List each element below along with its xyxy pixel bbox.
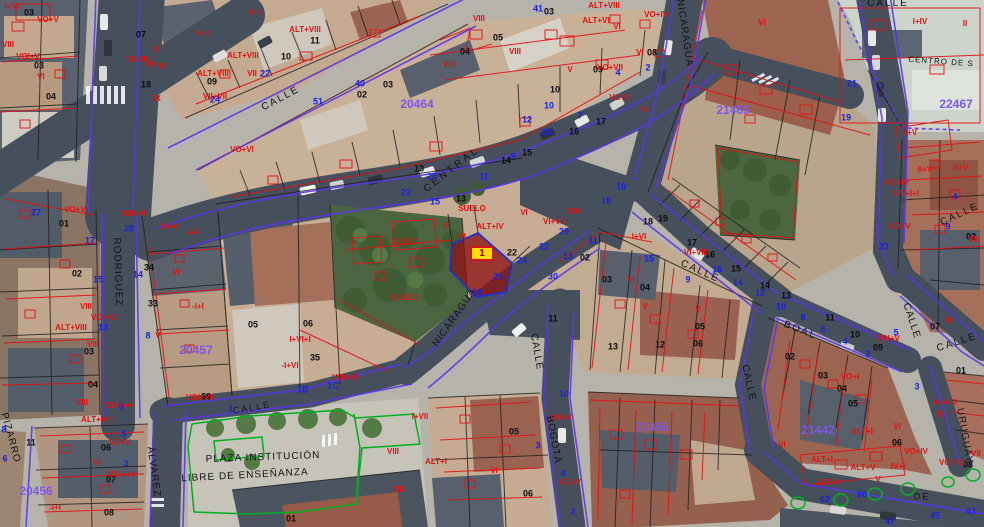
house-label: 2	[570, 508, 575, 517]
parcel-label: 13	[456, 195, 466, 204]
house-label: 21	[847, 80, 857, 89]
code-label: VOI+VII	[186, 394, 214, 402]
parcel-label: 33	[148, 300, 158, 309]
house-label: 6	[820, 326, 825, 335]
code-label: VOI+VI	[91, 314, 117, 322]
parcel-label: 10	[550, 86, 560, 95]
code-label: VIII	[509, 48, 521, 56]
street-label: LIBRE DE ENSEÑANZA	[181, 468, 309, 485]
parcel-label: 02	[580, 254, 590, 263]
code-label: VIII	[443, 61, 455, 69]
parcel-label: 06	[892, 439, 902, 448]
code-label: ALT+VIII	[55, 324, 87, 332]
street-label: CENTRO DE S	[908, 56, 974, 69]
code-label: VO+VI	[230, 146, 254, 154]
code-label: VI	[93, 459, 101, 467]
street-label: NICARAGUA	[674, 0, 693, 68]
code-label: VO+V	[37, 16, 59, 24]
code-label: ALT+VIII	[197, 70, 229, 78]
parcel-label: 15	[731, 265, 741, 274]
block-label: 21465	[716, 104, 749, 116]
code-label: IV+I	[891, 463, 905, 471]
code-label: VI+VIII	[684, 249, 708, 257]
code-label: V	[695, 306, 700, 314]
house-label: 16	[712, 266, 722, 275]
house-label: 47	[885, 518, 895, 527]
street-label: CALLE	[867, 0, 909, 9]
code-label: VII+VII	[203, 93, 227, 101]
code-label: I+VI	[5, 3, 19, 11]
street-label: ÁLVAREZ	[144, 446, 161, 498]
parcel-label: 03	[544, 8, 554, 17]
house-label: 20	[559, 228, 569, 237]
street-label: BOAL	[782, 320, 818, 342]
parcel-label: 03	[818, 372, 828, 381]
code-label: VO+I	[841, 373, 859, 381]
code-label: VIII	[387, 448, 399, 456]
selected-parcel-badge[interactable]: 1	[470, 246, 494, 261]
code-label: ALT+VIII	[227, 52, 259, 60]
code-label: I+V+I+I	[893, 190, 919, 198]
parcel-label: 09	[873, 344, 883, 353]
code-label: VII	[968, 236, 978, 244]
selected-parcel-number: 1	[479, 248, 485, 259]
code-label: VII	[971, 450, 981, 458]
parcel-label: 07	[930, 323, 940, 332]
house-label: 9	[510, 153, 515, 162]
parcel-label: 02	[785, 353, 795, 362]
code-label: VIII	[2, 41, 14, 49]
house-label: 11	[588, 237, 598, 246]
code-label: VO+V	[609, 94, 631, 102]
code-label: IV	[159, 63, 167, 71]
code-label: VIII	[87, 341, 99, 349]
house-label: 62	[820, 496, 830, 505]
code-label: VO+IV	[904, 448, 928, 456]
street-label: BOGOTÁ	[544, 415, 562, 465]
code-label: VIII	[392, 486, 404, 494]
street-label: CALLE	[528, 333, 544, 371]
house-label: 9	[685, 276, 690, 285]
house-label: 6	[2, 455, 7, 464]
house-label: 23	[879, 243, 889, 252]
parcel-label: 12	[655, 341, 665, 350]
parcel-label: 06	[523, 490, 533, 499]
parcel-label: 03	[24, 9, 34, 18]
parcel-label: 08	[647, 49, 657, 58]
code-label: V	[155, 332, 160, 340]
code-label: VIII	[76, 399, 88, 407]
parcel-label: 05	[493, 34, 503, 43]
parcel-label: 34	[144, 264, 154, 273]
house-label: 1C	[327, 382, 339, 391]
code-label: ALT+I	[425, 458, 447, 466]
code-label: V	[875, 476, 880, 484]
house-label: 41	[533, 5, 543, 14]
house-label: 1	[228, 405, 233, 414]
block-label: 21442	[801, 424, 834, 436]
code-label: VI	[944, 317, 952, 325]
code-label: ALT+I	[811, 456, 833, 464]
house-label: 18	[601, 197, 611, 206]
parcel-label: 03	[383, 81, 393, 90]
street-label: CALLE	[901, 302, 922, 340]
parcel-label: 05	[695, 323, 705, 332]
house-label: 10	[776, 303, 786, 312]
house-label: 10	[544, 102, 554, 111]
parcel-label: 02	[357, 91, 367, 100]
code-label: II+V	[918, 166, 932, 174]
parcel-label: 18	[643, 218, 653, 227]
parcel-label: 06	[693, 340, 703, 349]
code-label: VIII	[80, 303, 92, 311]
block-label: 20456	[19, 485, 52, 497]
code-label: VI	[641, 106, 649, 114]
code-label: -I+I	[186, 229, 198, 237]
code-label: VI	[778, 441, 786, 449]
house-label: 12	[522, 116, 532, 125]
parcel-label: 04	[460, 48, 470, 57]
code-label: I+IV	[913, 18, 927, 26]
house-label: 20	[427, 173, 437, 182]
code-label: VO+IV	[644, 11, 668, 19]
house-label: 8	[800, 314, 805, 323]
parcel-label: 09	[207, 78, 217, 87]
parcel-label: 02	[72, 270, 82, 279]
parcel-label: 10	[281, 53, 291, 62]
code-label: IV	[937, 411, 945, 419]
street-label: CALLE	[232, 400, 272, 416]
code-label: VOI+V	[876, 335, 900, 343]
parcel-label: 35	[310, 354, 320, 363]
code-label: V	[642, 303, 647, 311]
code-label: -I+I	[192, 303, 204, 311]
code-label: VI	[636, 49, 644, 57]
code-label: VI+VII	[543, 218, 565, 226]
parcel-label: 11	[26, 439, 36, 448]
house-label: 15	[93, 276, 103, 285]
code-label: SUELO	[458, 205, 486, 213]
code-label: VO+IV	[885, 179, 909, 187]
parcel-label: 06	[303, 320, 313, 329]
parcel-label: 15	[522, 149, 532, 158]
house-label: 51	[313, 98, 323, 107]
code-label: VI	[490, 467, 498, 475]
code-label: VI	[758, 19, 766, 27]
code-label: VOI+VI	[332, 374, 358, 382]
code-label: VOI+VI	[120, 210, 146, 218]
house-label: 60	[857, 491, 867, 500]
block-label: 20457	[179, 344, 212, 356]
code-label: VO+V	[889, 223, 911, 231]
parcel-label: 11	[548, 315, 558, 324]
street-label: PLAZA INSTITUCIÓN	[205, 451, 320, 465]
house-label: 20	[124, 225, 134, 234]
house-label: 10	[559, 390, 569, 399]
code-label: IX	[153, 95, 161, 103]
parcel-label: 17	[596, 118, 606, 127]
house-label: 8	[1, 426, 6, 435]
code-label: VI	[627, 276, 635, 284]
house-label: 30	[548, 273, 558, 282]
code-label: SUELO	[391, 294, 419, 302]
parcel-label: 01	[286, 515, 296, 524]
house-label: 16	[616, 183, 626, 192]
code-label: ALT+VI	[582, 17, 609, 25]
parcel-label: 04	[837, 385, 847, 394]
code-label: I+VI+I	[289, 336, 310, 344]
code-label: ALT+V	[816, 479, 841, 487]
parcel-label: 04	[640, 284, 650, 293]
house-label: 40	[355, 80, 365, 89]
house-label: 2	[645, 64, 650, 73]
parcel-label: 01	[59, 220, 69, 229]
code-label: ALT+V	[851, 464, 876, 472]
code-label: VI	[458, 233, 466, 241]
house-label: 4	[952, 193, 957, 202]
code-label: VII	[247, 70, 257, 78]
code-label: ALT+VIII	[289, 26, 321, 34]
house-label: 3	[123, 460, 128, 469]
parcel-label: 13	[608, 343, 618, 352]
code-label: II+VI	[162, 223, 179, 231]
code-label: VO+V	[64, 206, 86, 214]
code-label: -I+VI	[281, 362, 298, 370]
house-label: 13	[98, 324, 108, 333]
code-label: VI	[520, 209, 528, 217]
code-label: VOI+V	[16, 53, 40, 61]
house-label: 1B	[297, 386, 309, 395]
house-label: 11	[479, 173, 489, 182]
parcel-label: 11	[825, 314, 835, 323]
parcel-label: 18	[141, 81, 151, 90]
house-label: 28	[472, 289, 482, 298]
house-label: 19	[841, 114, 851, 123]
house-label: 9	[945, 223, 950, 232]
street-label: RODRIGUEZ	[111, 237, 123, 306]
code-label: VOI+VI	[939, 459, 965, 467]
code-label: SUELO	[391, 238, 419, 246]
street-label: CALLE	[936, 332, 979, 354]
code-label: II+V	[903, 129, 917, 137]
code-label: ALT+VIII	[588, 2, 620, 10]
parcel-label: 10	[850, 331, 860, 340]
parcel-label: 17	[687, 239, 697, 248]
house-label: 17	[85, 237, 95, 246]
code-label: -I+I	[49, 504, 61, 512]
street-label: CALLE	[739, 364, 756, 402]
house-label: 3	[914, 383, 919, 392]
code-label: ALT+I	[851, 428, 873, 436]
street-label: DE	[914, 493, 931, 502]
house-label: 22	[260, 70, 270, 79]
house-label: 7	[577, 112, 582, 121]
code-label: VI	[613, 23, 621, 31]
parcel-label: 05	[509, 428, 519, 437]
code-label: VI+VIII	[933, 399, 957, 407]
code-label: ALT+IV	[476, 223, 503, 231]
code-label: ALT+VIII	[81, 416, 113, 424]
parcel-label: 07	[136, 31, 146, 40]
house-label: 26	[493, 273, 503, 282]
code-label: VO+I+V	[104, 402, 132, 410]
street-label: CENTRAL	[422, 145, 481, 195]
house-label: 8	[145, 332, 150, 341]
code-label: VO+V	[559, 479, 581, 487]
cadastral-map-viewport[interactable]: CALLECENTRALNICARAGUANICARAGUARODRIGUEZP…	[0, 0, 984, 527]
code-label: VIII	[473, 15, 485, 23]
parcel-label: 05	[248, 321, 258, 330]
house-label: 22	[401, 189, 411, 198]
house-label: 43	[966, 508, 976, 517]
code-label: II	[443, 222, 447, 230]
parcel-label: 13	[414, 165, 424, 174]
house-label: 24	[517, 257, 527, 266]
house-label: 45	[930, 512, 940, 521]
parcel-label: 03	[34, 62, 44, 71]
parcel-label: 01	[956, 367, 966, 376]
street-label: CALLE	[260, 85, 302, 113]
block-label: 21456	[635, 421, 668, 433]
block-label: 20464	[400, 98, 433, 110]
parcel-label: 05	[848, 400, 858, 409]
parcel-label: 16	[569, 128, 579, 137]
house-label: 3	[535, 442, 540, 451]
house-label: 2	[865, 350, 870, 359]
code-label: -II+V	[951, 164, 968, 172]
code-label: II	[963, 20, 967, 28]
code-label: VO+I+V	[108, 471, 136, 479]
code-label: VO+V	[109, 439, 131, 447]
house-label: 4	[842, 338, 847, 347]
house-label: 13	[563, 253, 573, 262]
code-label: I+VI	[632, 233, 646, 241]
code-label: I+VII	[412, 413, 429, 421]
map-labels-layer: CALLECENTRALNICARAGUANICARAGUARODRIGUEZP…	[0, 0, 984, 527]
code-label: VO+V	[550, 414, 572, 422]
house-label: 15	[430, 198, 440, 207]
code-label: IX	[152, 46, 160, 54]
house-label: 7D	[540, 129, 552, 138]
code-label: V	[567, 66, 572, 74]
house-label: 15	[644, 255, 654, 264]
parcel-label: 04	[46, 93, 56, 102]
code-label: VIII	[249, 9, 261, 17]
code-label: VI	[172, 269, 180, 277]
parcel-label: 14	[501, 157, 511, 166]
parcel-label: 08	[104, 509, 114, 518]
parcel-label: 13	[781, 292, 791, 301]
code-label: VI	[893, 423, 901, 431]
code-label: VI+VII	[126, 56, 148, 64]
parcel-label: 19	[658, 215, 668, 224]
parcel-label: 11	[310, 37, 320, 46]
parcel-label: 22	[507, 249, 517, 258]
house-label: 14	[133, 271, 143, 280]
code-label: VO+VII	[597, 64, 623, 72]
code-label: VOI	[566, 208, 580, 216]
parcel-label: 04	[88, 381, 98, 390]
house-label: 14	[733, 279, 743, 288]
house-label: 27	[31, 209, 41, 218]
house-label: 22	[539, 243, 549, 252]
parcel-label: 14	[760, 282, 770, 291]
block-label: 22467	[939, 98, 972, 110]
code-label: VIII	[197, 30, 209, 38]
code-label: VI	[37, 73, 45, 81]
parcel-label: 03	[602, 276, 612, 285]
